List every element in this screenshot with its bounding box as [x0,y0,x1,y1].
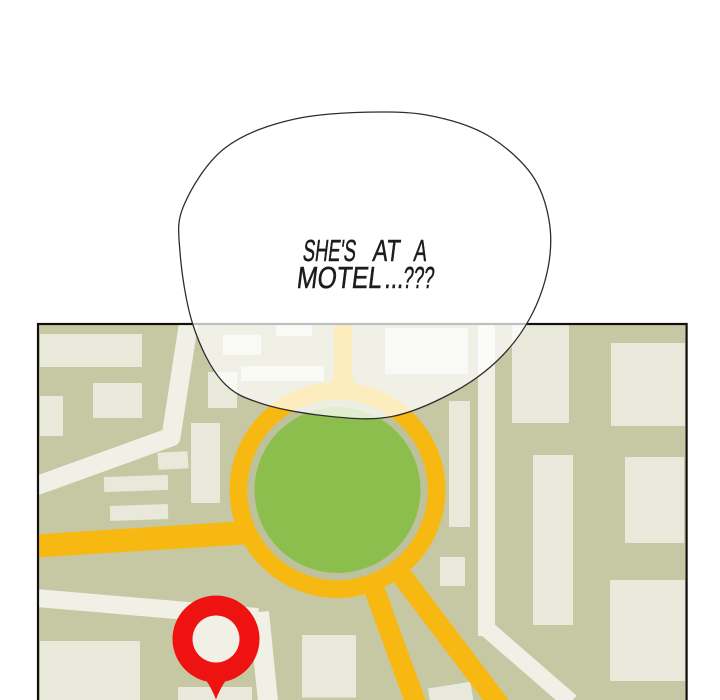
svg-text:MOTEL: MOTEL [295,261,384,295]
svg-text:???: ??? [401,261,436,295]
